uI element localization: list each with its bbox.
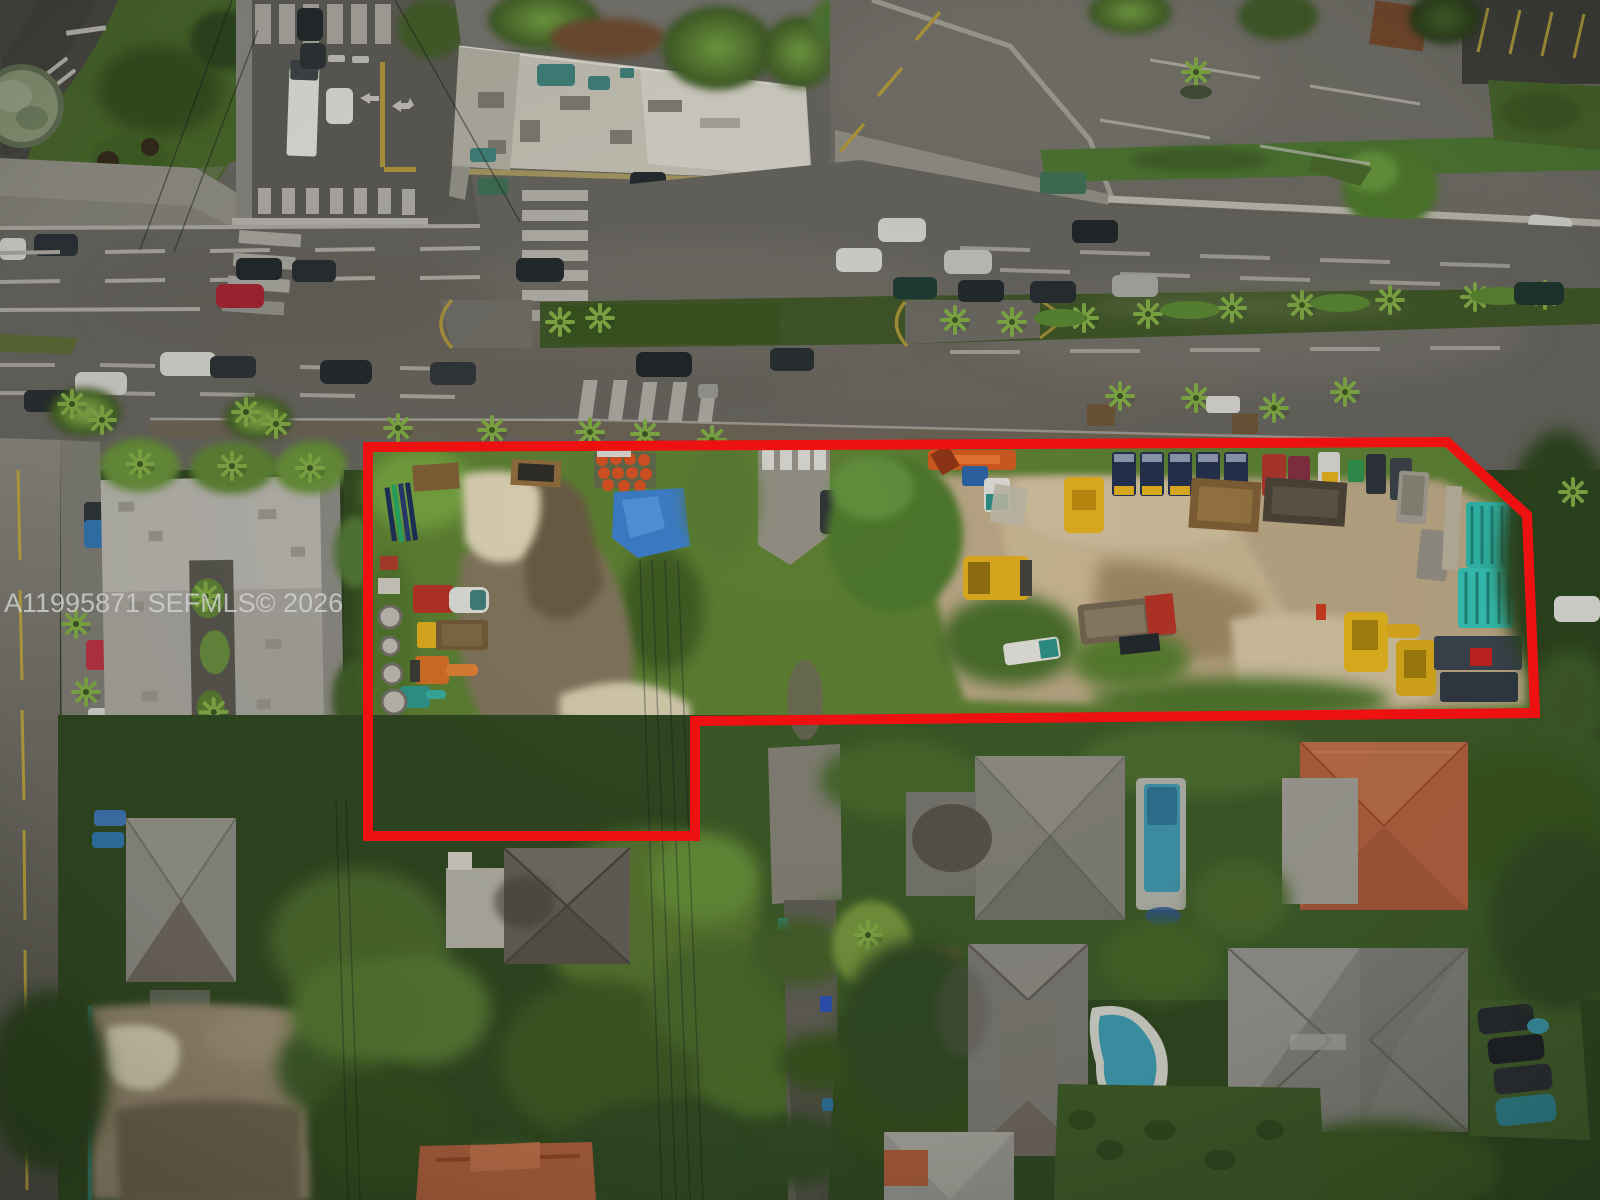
svg-text:A11995871 SEFMLS© 2026: A11995871 SEFMLS© 2026: [4, 588, 343, 618]
